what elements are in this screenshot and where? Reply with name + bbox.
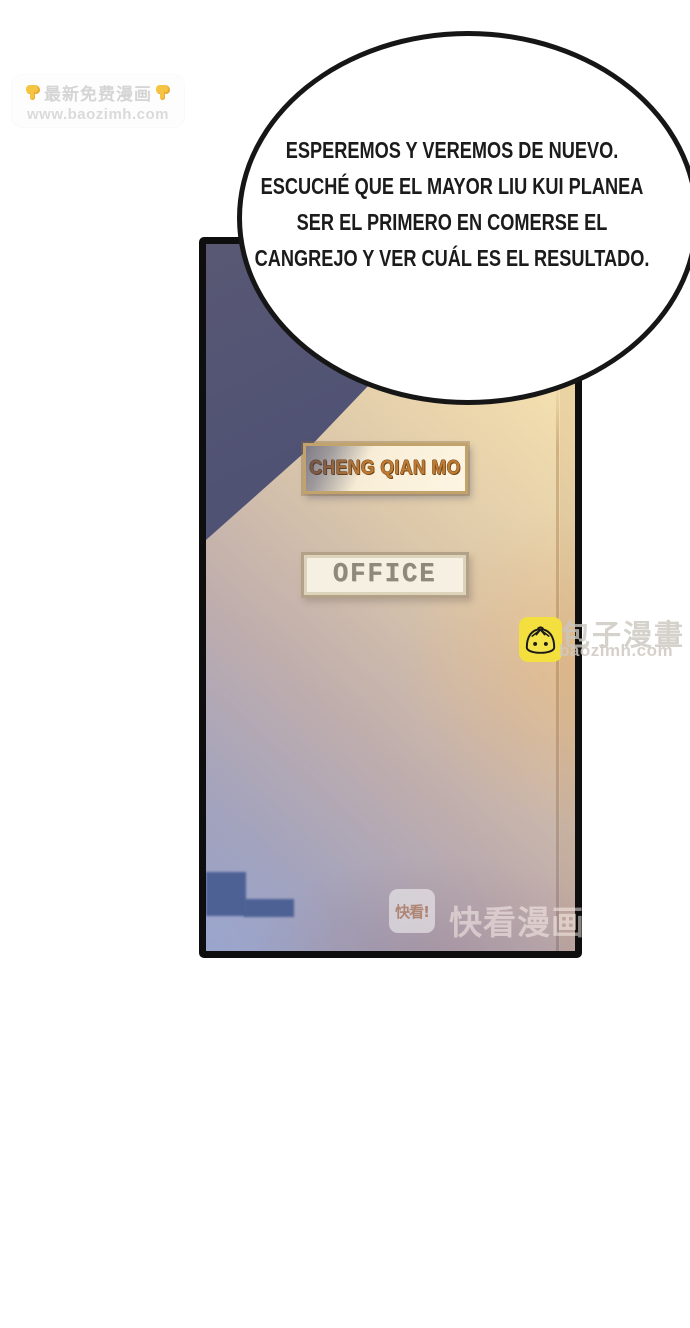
watermark-top-message: 最新免费漫画 [44,80,152,105]
point-down-hand-icon [26,84,40,100]
speech-line: ESCUCHÉ QUE EL MAYOR LIU KUI PLANEA [227,168,677,204]
office-plate-text: OFFICE [333,560,437,590]
shadow-step-silhouette [244,899,294,917]
kuaikan-badge-text: 快看! [395,901,429,922]
watermark-side-site: baozimh.com [559,641,673,661]
comic-page: 最新免费漫画 www.baozimh.com CHENG QIAN MO OFF… [0,0,690,1328]
speech-line: ESPEREMOS Y VEREMOS DE NUEVO. [227,132,677,168]
name-plate: CHENG QIAN MO [303,443,468,494]
watermark-top-row: 最新免费漫画 [26,80,170,105]
speech-line: SER EL PRIMERO EN COMERSE EL [227,204,677,240]
watermark-top-card: 最新免费漫画 www.baozimh.com [12,75,184,127]
office-plate: OFFICE [301,552,469,598]
door-jamb [560,374,575,951]
point-down-hand-icon [156,84,170,100]
baozi-bun-logo-icon [519,617,562,662]
speech-line: CANGREJO Y VER CUÁL ES EL RESULTADO. [227,240,677,276]
watermark-top-site: www.baozimh.com [27,106,169,123]
name-plate-text: CHENG QIAN MO [310,457,461,480]
kuaikan-badge: 快看! [389,889,435,933]
door-edge-line [556,379,559,951]
shadow-step-silhouette [206,872,246,916]
watermark-bottom-label: 快看漫画 [449,896,585,944]
speech-bubble-text: ESPEREMOS Y VEREMOS DE NUEVO. ESCUCHÉ QU… [227,132,677,276]
